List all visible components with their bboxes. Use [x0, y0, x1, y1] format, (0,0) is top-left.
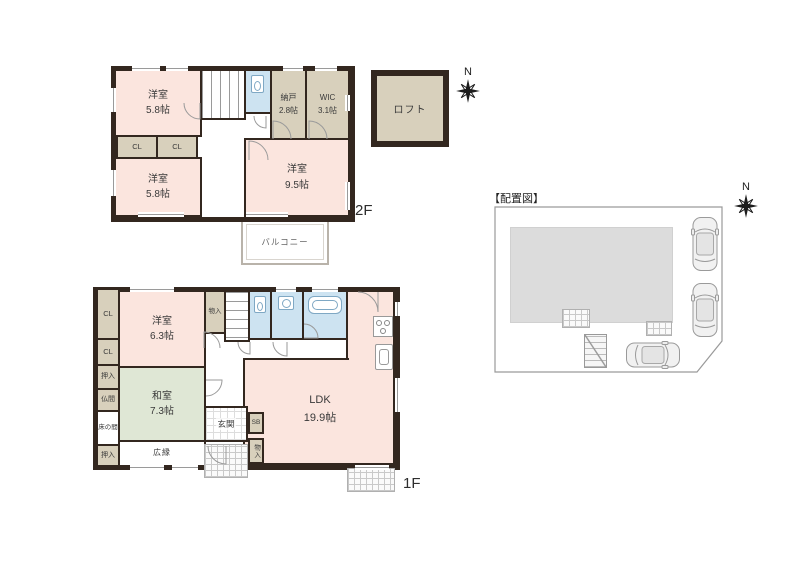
room-name: 洋室 — [287, 164, 307, 175]
toilet-bowl-icon — [257, 302, 263, 311]
closet-cl-top: CL — [96, 288, 120, 340]
site-plan-title: 【配置図】 — [489, 190, 544, 206]
window-marker — [111, 170, 116, 196]
burner-icon — [376, 320, 382, 326]
floor2-tag: 2F — [355, 202, 373, 219]
closet-label: 物入 — [209, 308, 222, 315]
site-approach-steps — [584, 334, 607, 368]
room-label: WIC 3.1帖 — [318, 92, 337, 117]
room-size: 2.8帖 — [279, 105, 298, 117]
staircase-2f — [200, 69, 246, 120]
bathtub-icon — [308, 296, 342, 314]
compass-top: N — [455, 66, 481, 104]
closet-monoire-entry: 物入 — [248, 438, 264, 464]
toilet-bowl-icon — [254, 81, 261, 91]
bathtub-inner-icon — [312, 300, 338, 310]
closet-label: CL — [172, 143, 182, 151]
room-label: 洋室 6.3帖 — [150, 314, 174, 345]
window-marker — [130, 465, 164, 470]
site-porch-step — [562, 309, 590, 328]
room-yoshitsu-nw: 洋室 5.8帖 — [114, 69, 202, 137]
window-marker — [345, 182, 350, 210]
balcony-label: バルコニー — [261, 236, 308, 248]
window-marker — [130, 287, 174, 292]
room-label: 洋室 9.5帖 — [285, 162, 309, 193]
closet-label: CL — [103, 348, 113, 356]
compass-rose-icon — [733, 193, 759, 219]
toilet-icon — [254, 296, 266, 313]
room-size: 3.1帖 — [318, 105, 337, 117]
floorplan-canvas: 洋室 5.8帖 CL CL 洋室 5.8帖 納戸 2.8帖 WIC 3.1帖 洋… — [0, 0, 800, 562]
car-icon — [691, 282, 719, 338]
room-nando: 納戸 2.8帖 — [270, 69, 307, 140]
genkan-entry: 玄関 — [204, 406, 248, 442]
closet-cl-mid: CL — [96, 338, 120, 366]
closet-cl-right: CL — [156, 135, 198, 159]
room-yoshitsu-sw: 洋室 5.8帖 — [114, 157, 202, 217]
ldk-label: LDK 19.9帖 — [280, 392, 360, 427]
closet-label: 押入 — [101, 452, 115, 460]
window-marker — [355, 465, 389, 470]
burner-icon — [380, 328, 386, 334]
window-marker — [395, 302, 400, 316]
shoebox-sb: SB — [248, 412, 264, 434]
room-label: 和室 7.3帖 — [150, 389, 174, 420]
room-name: 洋室 — [148, 174, 168, 185]
window-marker — [283, 66, 303, 71]
room-name: 洋室 — [148, 90, 168, 101]
room-label: 洋室 5.8帖 — [146, 88, 170, 119]
hiroen-veranda: 広縁 — [118, 440, 206, 467]
window-marker — [132, 66, 160, 71]
toilet-icon — [251, 75, 264, 93]
compass-north-label: N — [733, 181, 759, 193]
window-marker — [138, 212, 184, 217]
loft-label: ロフト — [394, 101, 427, 116]
room-name: LDK — [280, 392, 360, 410]
closet-label: CL — [132, 143, 142, 151]
room-name: WIC — [320, 93, 336, 102]
hiroen-label: 広縁 — [153, 449, 171, 458]
closet-label: CL — [103, 310, 113, 318]
room-name: 和室 — [152, 391, 172, 402]
window-marker — [395, 378, 400, 412]
window-marker — [246, 212, 288, 217]
room-washitsu: 和室 7.3帖 — [118, 366, 206, 442]
room-size: 5.8帖 — [146, 187, 170, 203]
car-icon — [691, 216, 719, 272]
window-marker — [172, 465, 198, 470]
butsuma-label: 仏間 — [101, 396, 115, 404]
stove-icon — [373, 316, 393, 337]
floor1-tag: 1F — [403, 475, 421, 492]
compass-site: N — [733, 181, 759, 219]
balcony: バルコニー — [241, 219, 329, 265]
staircase-1f — [224, 290, 250, 342]
butsuma-cell: 仏間 — [96, 388, 120, 412]
sink-basin-icon — [379, 349, 389, 365]
washbasin-bowl-icon — [282, 299, 291, 308]
washbasin-icon — [278, 296, 294, 310]
room-size: 6.3帖 — [150, 329, 174, 345]
window-marker — [276, 287, 296, 292]
tokonoma-label: 床の間 — [98, 424, 118, 431]
closet-label: 物入 — [252, 444, 259, 459]
kitchen-sink-icon — [375, 344, 393, 370]
car-icon — [625, 341, 681, 369]
window-marker — [166, 66, 188, 71]
burner-icon — [384, 320, 390, 326]
window-marker — [315, 66, 337, 71]
room-size: 5.8帖 — [146, 103, 170, 119]
closet-label: 押入 — [101, 373, 115, 381]
closet-monoire-stairs: 物入 — [204, 290, 226, 334]
compass-rose-icon — [455, 78, 481, 104]
room-size: 19.9帖 — [280, 410, 360, 428]
genkan-label: 玄関 — [216, 418, 235, 430]
window-marker — [345, 95, 350, 111]
room-yoshitsu-se: 洋室 9.5帖 — [244, 138, 350, 217]
closet-cl-left: CL — [116, 135, 158, 159]
room-name: 洋室 — [152, 316, 172, 327]
room-label: 洋室 5.8帖 — [146, 172, 170, 203]
room-size: 7.3帖 — [150, 404, 174, 420]
sb-label: SB — [252, 419, 261, 426]
closet-oshiire-upper: 押入 — [96, 364, 120, 390]
loft-box: ロフト — [371, 70, 449, 147]
window-marker — [111, 88, 116, 112]
room-name: 納戸 — [281, 93, 297, 102]
room-size: 9.5帖 — [285, 178, 309, 194]
compass-north-label: N — [455, 66, 481, 78]
entrance-porch — [204, 444, 248, 478]
site-terrace-step — [646, 321, 672, 336]
tokonoma-cell: 床の間 — [96, 410, 120, 446]
room-yoshitsu-1f: 洋室 6.3帖 — [118, 290, 206, 368]
terrace — [347, 468, 395, 492]
room-wic: WIC 3.1帖 — [305, 69, 350, 140]
room-label: 納戸 2.8帖 — [279, 92, 298, 117]
site-building-footprint — [510, 227, 673, 323]
window-marker — [312, 287, 338, 292]
closet-oshiire-lower: 押入 — [96, 444, 120, 467]
